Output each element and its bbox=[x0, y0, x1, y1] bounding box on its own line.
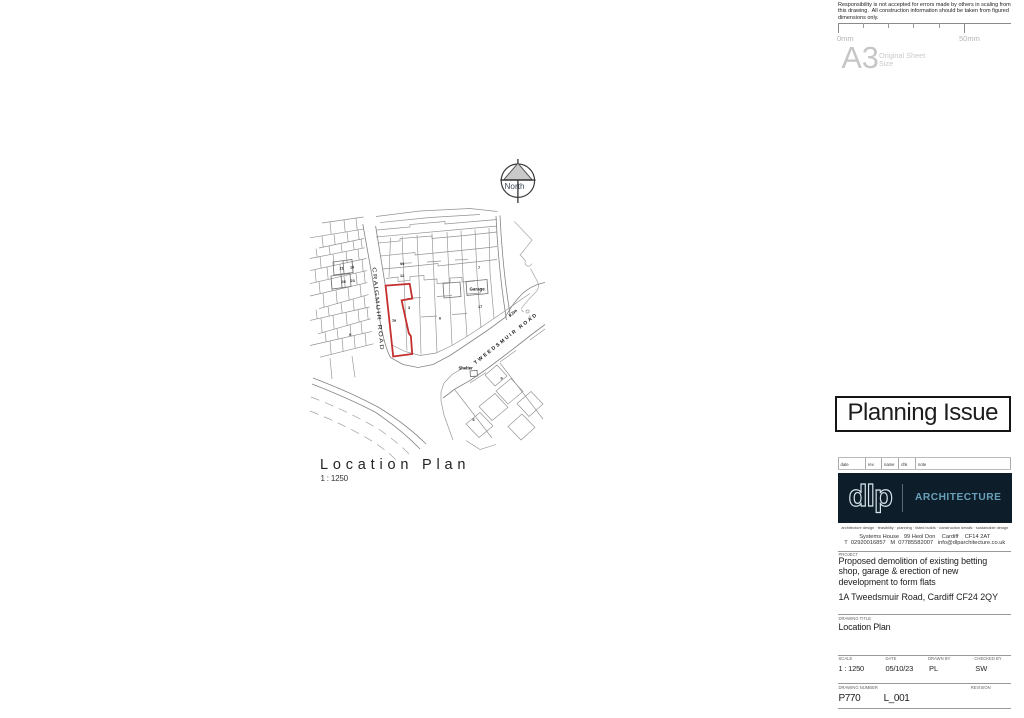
svg-text:17: 17 bbox=[478, 305, 482, 309]
svg-text:14: 14 bbox=[400, 262, 405, 266]
svg-text:North: North bbox=[505, 182, 525, 191]
svg-text:21: 21 bbox=[340, 267, 344, 271]
svg-text:CRAIGMUIR ROAD: CRAIGMUIR ROAD bbox=[370, 267, 384, 351]
svg-text:23: 23 bbox=[351, 279, 355, 283]
svg-text:12: 12 bbox=[400, 274, 404, 278]
svg-text:6: 6 bbox=[473, 418, 475, 422]
svg-text:1a: 1a bbox=[392, 319, 397, 323]
svg-text:Garage: Garage bbox=[470, 287, 486, 292]
svg-text:19: 19 bbox=[350, 266, 354, 270]
svg-text:7: 7 bbox=[478, 266, 480, 270]
svg-text:25: 25 bbox=[342, 280, 346, 284]
svg-text:6: 6 bbox=[439, 317, 441, 321]
svg-text:Shelter: Shelter bbox=[459, 366, 474, 371]
svg-text:9: 9 bbox=[501, 377, 503, 381]
svg-text:9: 9 bbox=[349, 333, 351, 337]
svg-text:3: 3 bbox=[408, 306, 410, 310]
